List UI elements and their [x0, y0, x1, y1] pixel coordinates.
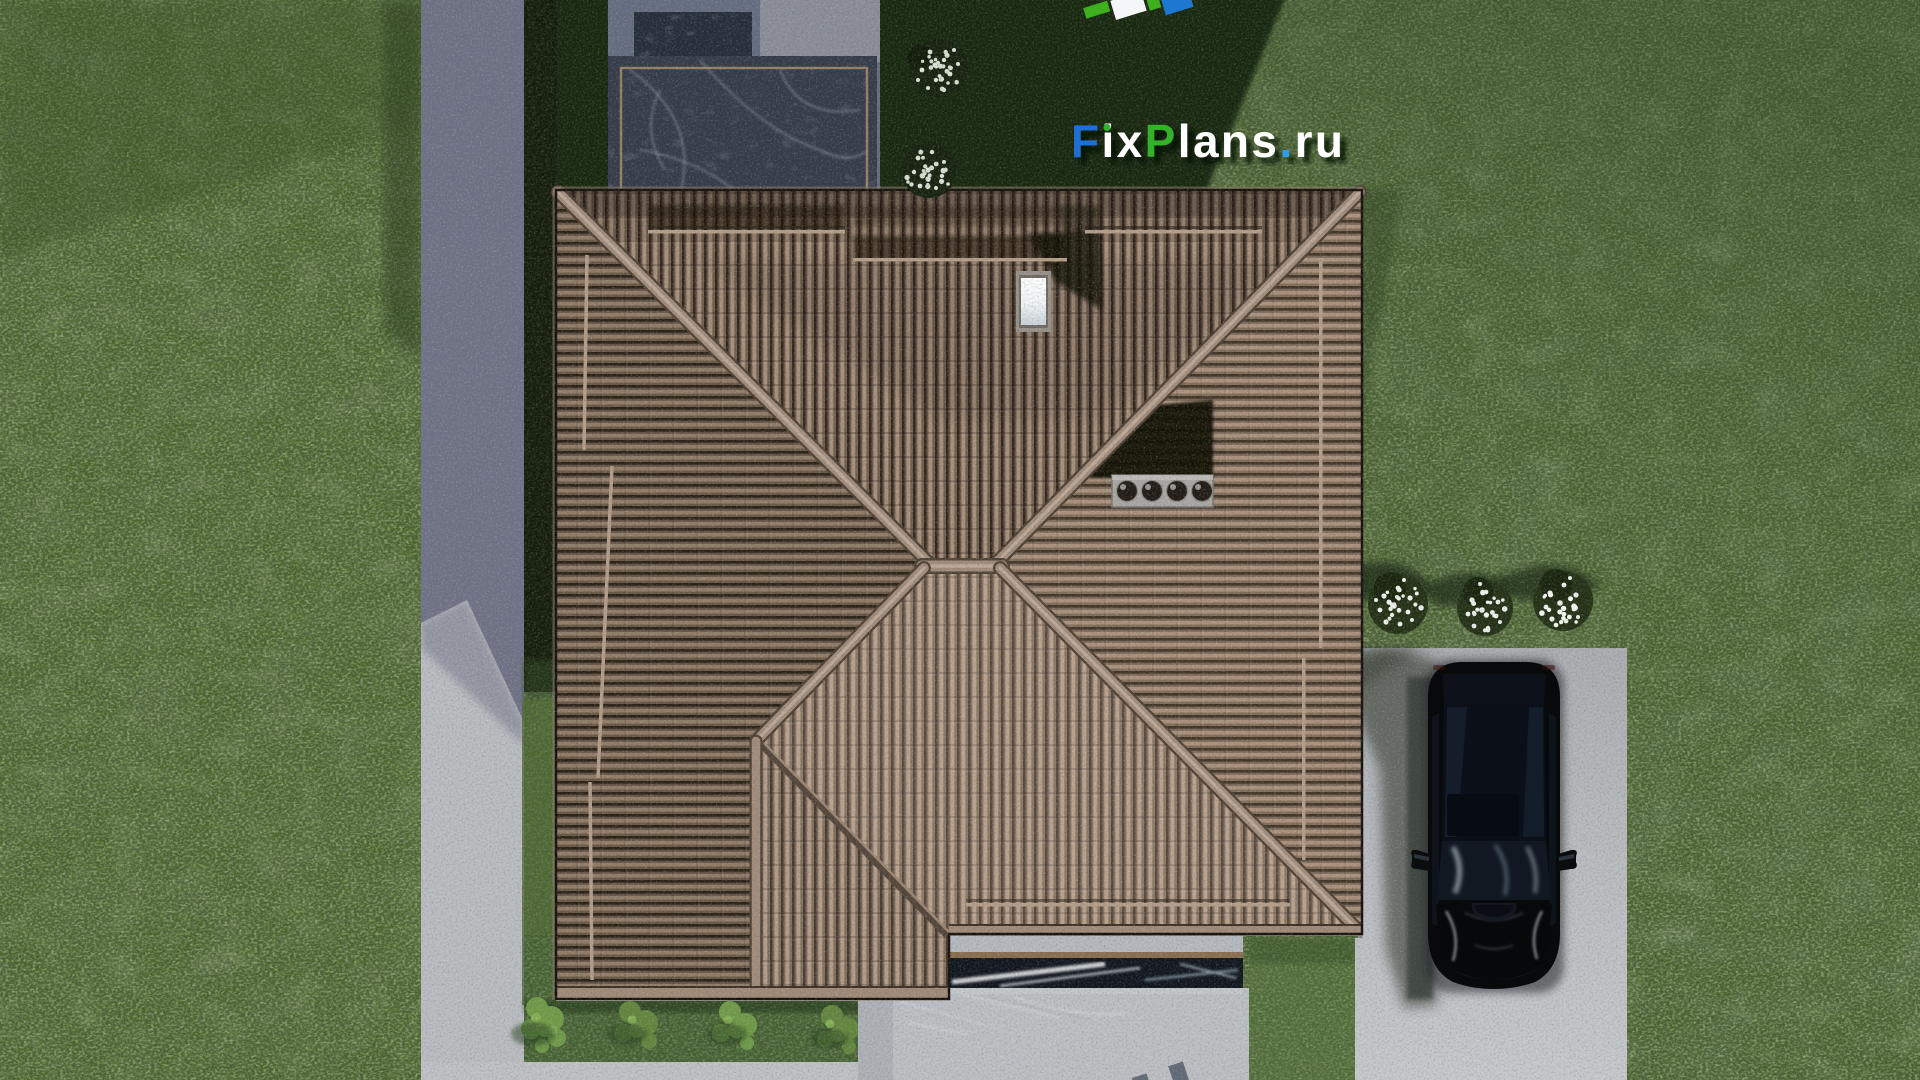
svg-text:FixPlans.ru: FixPlans.ru	[1071, 115, 1345, 167]
